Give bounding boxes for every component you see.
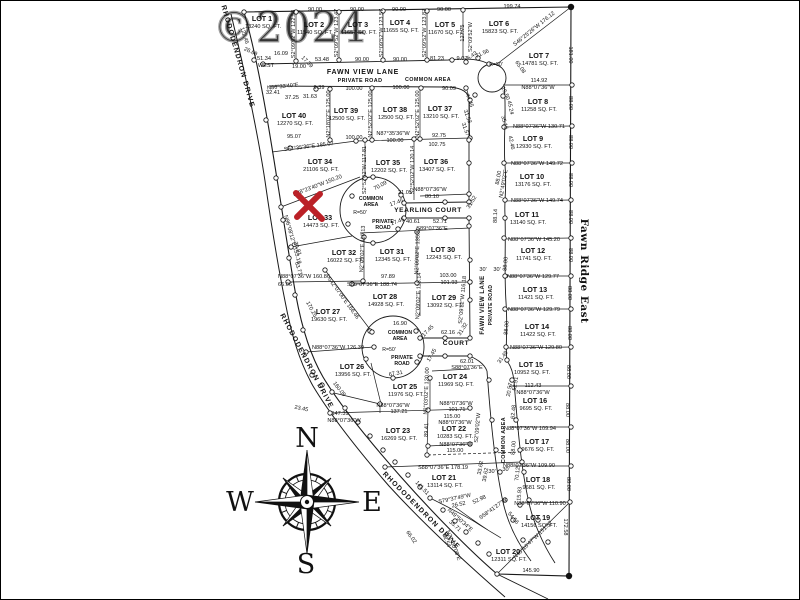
dimension-label: N88°07'36"W 149.72 bbox=[511, 161, 563, 167]
dimension-label: 160.09 bbox=[331, 381, 346, 398]
lot-number-label: LOT 15 bbox=[519, 360, 543, 369]
lot-number-label: LOT 4 bbox=[390, 18, 410, 27]
lot-number-label: LOT 16 bbox=[523, 396, 547, 405]
lot-number-label: LOT 10 bbox=[520, 172, 544, 181]
dimension-label: 88.00 bbox=[564, 403, 570, 417]
dimension-label: S46°25'26"W 176.12 bbox=[512, 11, 556, 48]
lot-sqft-label: 11421 SQ. FT. bbox=[518, 295, 554, 301]
survey-point bbox=[468, 280, 472, 284]
compass-south-label: S bbox=[297, 549, 316, 580]
survey-point bbox=[274, 176, 278, 180]
street-label: FAWN VIEW LANE bbox=[480, 275, 486, 334]
lot-number-label: LOT 35 bbox=[376, 158, 400, 167]
compass-ray bbox=[315, 476, 317, 482]
lot-number-label: LOT 32 bbox=[332, 248, 356, 257]
dimension-label: 147.31 bbox=[331, 411, 348, 417]
dimension-label: 52.98 bbox=[472, 494, 487, 505]
dimension-label: 30' bbox=[488, 469, 495, 475]
lot-number-label: LOT 11 bbox=[515, 210, 539, 219]
compass-point bbox=[307, 450, 314, 502]
survey-point bbox=[569, 307, 573, 311]
survey-point bbox=[419, 86, 423, 90]
dimension-label: 95.07 bbox=[287, 134, 301, 140]
plat-map-svg: ©2024 90.0090.0090.0090.00199.74S46°25'2… bbox=[0, 0, 800, 600]
dimension-label: 100.00 bbox=[386, 138, 403, 144]
survey-point bbox=[476, 541, 480, 545]
dimension-label: 100.00 bbox=[345, 135, 362, 141]
lot-number-label: LOT 28 bbox=[373, 292, 397, 301]
survey-point bbox=[570, 83, 574, 87]
survey-point bbox=[425, 453, 429, 457]
dimension-label: 66.02 bbox=[404, 530, 417, 545]
dimension-label: S88°07'36"E 188.74 bbox=[347, 282, 397, 288]
survey-point bbox=[569, 464, 573, 468]
survey-point bbox=[425, 58, 429, 62]
dimension-label: N88°07'36"W 160.86 bbox=[278, 274, 330, 280]
survey-point bbox=[363, 138, 367, 142]
dimension-label: 16.09 bbox=[274, 51, 288, 57]
survey-point bbox=[502, 236, 506, 240]
dimension-label: 97.89 bbox=[381, 274, 395, 280]
dimension-label: 9.39 bbox=[314, 85, 325, 91]
lot-number-label: LOT 17 bbox=[525, 437, 549, 446]
survey-point bbox=[546, 540, 550, 544]
dimension-label: 199.74 bbox=[503, 4, 520, 10]
survey-point bbox=[371, 175, 375, 179]
lot-sqft-label: 12500 SQ. FT. bbox=[378, 115, 415, 121]
survey-point bbox=[503, 216, 507, 220]
lot-number-label: LOT 40 bbox=[282, 111, 306, 120]
street-label: PRIVATE ROAD bbox=[488, 285, 494, 326]
dimension-label: N88°07'36"W bbox=[521, 85, 555, 91]
dimension-label: 101.93 bbox=[440, 280, 457, 286]
dimension-label: S2°09'52"W 122.58 bbox=[291, 10, 297, 59]
survey-point bbox=[522, 470, 526, 474]
dimension-label: 20.57 bbox=[506, 382, 514, 397]
survey-point bbox=[418, 336, 422, 340]
survey-point bbox=[323, 268, 327, 272]
dimension-label: 30' bbox=[502, 467, 509, 473]
lot-sqft-label: 9695 SQ. FT. bbox=[520, 406, 553, 412]
dimension-label: 71.56 bbox=[475, 48, 490, 59]
lot-number-label: LOT 26 bbox=[340, 362, 364, 371]
dimension-label: 16.90 bbox=[393, 321, 407, 327]
street-label: R=50' bbox=[382, 347, 396, 353]
dimension-label: 70.12 bbox=[514, 467, 521, 481]
dimension-label: 53.48 bbox=[315, 57, 329, 63]
dimension-label: N87°35'36"W bbox=[376, 131, 410, 137]
survey-point bbox=[393, 460, 397, 464]
survey-point bbox=[521, 538, 525, 542]
lot-sqft-label: 13407 SQ. FT. bbox=[419, 167, 456, 173]
dimension-label: 115.00 bbox=[447, 448, 464, 454]
survey-point bbox=[503, 307, 507, 311]
lot-sqft-label: 10283 SQ. FT. bbox=[437, 434, 474, 440]
survey-monument bbox=[566, 573, 572, 579]
survey-point bbox=[569, 236, 573, 240]
dimension-label: 88.00 bbox=[567, 248, 573, 262]
dimension-label: 88.00 bbox=[503, 321, 510, 335]
survey-point bbox=[428, 496, 432, 500]
survey-point bbox=[487, 378, 491, 382]
dimension-label: N2°09'02"E 135.80 bbox=[414, 227, 422, 274]
survey-point bbox=[467, 216, 471, 220]
lot-sqft-label: 13956 SQ. FT. bbox=[335, 372, 372, 378]
dimension-label: 88.00 bbox=[566, 326, 572, 340]
dimension-label: 90.09 bbox=[442, 86, 456, 92]
dimension-label: 172.58 bbox=[562, 518, 568, 535]
dimension-label: WEST bbox=[258, 63, 275, 69]
survey-point bbox=[461, 8, 465, 12]
lot-sqft-label: 9681 SQ. FT. bbox=[523, 485, 556, 491]
lot-number-label: LOT 12 bbox=[521, 246, 545, 255]
dimension-label: N88°07'36"W 129.79 bbox=[508, 307, 560, 313]
lot-number-label: LOT 13 bbox=[523, 285, 547, 294]
dimension-label: 88.00 bbox=[567, 135, 573, 149]
dimension-label: S2°52'02"W 117.81 bbox=[362, 146, 368, 194]
street-label: COMMON AREA bbox=[501, 417, 507, 463]
compass-rose: N S W E bbox=[226, 423, 382, 580]
dimension-label: S2°09'52"W 123.87 bbox=[422, 9, 428, 58]
dimension-label: S2°09'52"W bbox=[468, 21, 474, 52]
lot-sqft-label: 11422 SQ. FT. bbox=[520, 332, 556, 338]
lot-number-label: LOT 22 bbox=[442, 424, 466, 433]
dimension-label: 17.45 bbox=[421, 324, 435, 338]
survey-point bbox=[504, 345, 508, 349]
lot-number-label: LOT 3 bbox=[348, 20, 368, 29]
survey-point bbox=[343, 406, 347, 410]
street-label: AREA bbox=[364, 202, 379, 208]
survey-point bbox=[490, 418, 494, 422]
lot-number-label: LOT 1 bbox=[252, 14, 272, 23]
survey-point bbox=[495, 572, 499, 576]
dimension-label: 181.00 bbox=[567, 46, 573, 63]
survey-point bbox=[264, 118, 268, 122]
compass-east-label: E bbox=[362, 487, 382, 518]
survey-point bbox=[279, 205, 283, 209]
survey-point bbox=[364, 357, 368, 361]
dimension-label: S2°09'52"W 123.47 bbox=[334, 9, 340, 58]
lot-number-label: LOT 39 bbox=[334, 106, 358, 115]
lot-number-label: LOT 30 bbox=[431, 245, 455, 254]
dimension-label: 90.00 bbox=[355, 57, 369, 63]
lot-number-label: LOT 31 bbox=[380, 247, 404, 256]
dimension-label: N2°09'02"E 118.14 bbox=[415, 272, 423, 319]
dimension-label: N2°09'02"E 110.13 bbox=[359, 225, 367, 272]
dimension-label: N88°07'36"W 129.77 bbox=[507, 274, 559, 280]
dimension-label: 88.00 bbox=[565, 365, 571, 379]
lot-sqft-label: 16022 SQ. FT. bbox=[327, 258, 364, 264]
street-label: FAWN VIEW LANE bbox=[327, 69, 399, 76]
survey-point bbox=[569, 384, 573, 388]
survey-point bbox=[370, 330, 374, 334]
dimension-label: 23.45 bbox=[294, 405, 309, 414]
lot-sqft-label: 19630 SQ. FT. bbox=[311, 317, 348, 323]
lot-sqft-label: 12270 SQ. FT. bbox=[277, 121, 314, 127]
lot-sqft-label: 12202 SQ. FT. bbox=[371, 168, 408, 174]
lot-sqft-label: 14781 SQ. FT. bbox=[522, 61, 559, 67]
lot-sqft-label: 13092 SQ. FT. bbox=[427, 303, 464, 309]
lot-sqft-label: 10952 SQ. FT. bbox=[514, 370, 551, 376]
dimension-label: S88°07'36"E bbox=[451, 365, 483, 371]
lot-sqft-label: 11741 SQ. FT. bbox=[516, 256, 552, 262]
dimension-label: 101.71 bbox=[448, 407, 465, 413]
dimension-label: 88.00 bbox=[564, 439, 570, 453]
lot-number-label: LOT 14 bbox=[525, 322, 549, 331]
survey-point bbox=[468, 354, 472, 358]
lot-sqft-label: 14156 SQ. FT. bbox=[521, 523, 558, 529]
survey-point bbox=[468, 298, 472, 302]
lot-number-label: LOT 24 bbox=[443, 372, 467, 381]
street-label: RHODODENDRON DRIVE bbox=[278, 313, 334, 410]
survey-point bbox=[467, 161, 471, 165]
dimension-label: N88°07'36"W bbox=[327, 418, 361, 424]
dimension-label: 40.61 bbox=[406, 219, 420, 225]
compass-ray bbox=[327, 510, 333, 512]
compass-point bbox=[307, 502, 314, 554]
plat-map-page: ©2024 90.0090.0090.0090.00199.74S46°25'2… bbox=[0, 0, 800, 600]
survey-point bbox=[473, 93, 477, 97]
survey-point bbox=[568, 500, 572, 504]
survey-point bbox=[569, 274, 573, 278]
lot-number-label: LOT 21 bbox=[432, 473, 456, 482]
lot-number-label: LOT 29 bbox=[432, 293, 456, 302]
survey-point bbox=[371, 241, 375, 245]
dimension-label: N88°07'36"W 145.20 bbox=[508, 237, 560, 243]
dimension-label: 51.34 bbox=[257, 56, 271, 62]
dimension-label: 100.00 bbox=[345, 86, 362, 92]
lot-number-label: LOT 5 bbox=[435, 20, 455, 29]
dimension-label: 37.25 bbox=[285, 95, 299, 101]
dimension-label: 88.00 bbox=[567, 173, 573, 187]
dimension-label: 19.00 bbox=[292, 64, 306, 70]
dimension-label: 114.92 bbox=[531, 78, 548, 84]
lot-number-label: LOT 25 bbox=[393, 382, 417, 391]
dimension-label: 80.10 bbox=[425, 194, 439, 200]
dimension-label: N2°18'02"E 125.00 bbox=[326, 90, 332, 137]
survey-point bbox=[381, 448, 385, 452]
lot-sqft-label: 11976 SQ. FT. bbox=[388, 392, 424, 398]
dimension-label: S2°09'02"W bbox=[474, 412, 483, 443]
lot-number-label: LOT 9 bbox=[523, 134, 543, 143]
survey-point bbox=[346, 222, 350, 226]
dimension-label: 35.16 bbox=[499, 115, 508, 130]
street-label: ROAD bbox=[375, 225, 391, 231]
survey-point bbox=[487, 552, 491, 556]
compass-ray bbox=[296, 522, 298, 528]
dimension-label: 90.00 bbox=[392, 7, 406, 13]
lot-sqft-label: 16269 SQ. FT. bbox=[381, 436, 418, 442]
lot-sqft-label: 12243 SQ. FT. bbox=[426, 255, 463, 261]
street-label: PRIVATE ROAD bbox=[338, 78, 383, 84]
lot-number-label: LOT 19 bbox=[526, 513, 550, 522]
dimension-label: 137.21 bbox=[390, 409, 407, 415]
lot-sqft-label: 12500 SQ. FT. bbox=[329, 116, 366, 122]
survey-point bbox=[414, 329, 418, 333]
dimension-label: S2°09'52"W 116.18 bbox=[458, 276, 468, 324]
dimension-label: 30' bbox=[479, 267, 486, 273]
survey-point bbox=[294, 59, 298, 63]
survey-point bbox=[467, 138, 471, 142]
lot-sqft-label: 11258 SQ. FT. bbox=[521, 107, 557, 113]
dimension-label: 90.00 bbox=[350, 7, 364, 13]
survey-point bbox=[464, 86, 468, 90]
dimension-label: N88°07'36"W bbox=[413, 187, 447, 193]
dimension-label: 89.41 bbox=[424, 423, 430, 437]
dimension-label: N88°07'36"W 109.90 bbox=[503, 463, 555, 469]
survey-point bbox=[337, 58, 341, 62]
compass-point bbox=[307, 502, 359, 509]
dimension-label: 21.05 bbox=[398, 190, 412, 196]
survey-point bbox=[569, 198, 573, 202]
dimension-label: N88°07'36"W 129.80 bbox=[510, 345, 562, 351]
survey-point bbox=[467, 192, 471, 196]
compass-ray bbox=[327, 491, 333, 493]
survey-point bbox=[443, 200, 447, 204]
survey-point bbox=[441, 508, 445, 512]
survey-point bbox=[569, 425, 573, 429]
survey-point bbox=[381, 58, 385, 62]
lot-sqft-label: 21106 SQ. FT. bbox=[303, 167, 339, 173]
survey-point bbox=[372, 345, 376, 349]
lot-number-label: LOT 38 bbox=[383, 105, 407, 114]
dimension-label: 90.00 bbox=[393, 57, 407, 63]
dimension-label: 45.24 bbox=[506, 100, 515, 115]
survey-point bbox=[330, 390, 334, 394]
survey-point bbox=[350, 194, 354, 198]
survey-point bbox=[287, 256, 291, 260]
survey-point bbox=[450, 58, 454, 62]
dimension-label: S67°35'36"E 185.07 bbox=[284, 141, 334, 153]
street-label: ROAD bbox=[394, 361, 410, 367]
dimension-label: 81.23 bbox=[430, 56, 444, 62]
lot-number-label: LOT 34 bbox=[308, 157, 332, 166]
lot-sqft-label: 13240 SQ. FT. bbox=[245, 24, 282, 30]
lot-number-label: LOT 37 bbox=[428, 104, 452, 113]
lot-sqft-label: 9676 SQ. FT. bbox=[522, 447, 555, 453]
survey-point bbox=[293, 293, 297, 297]
compass-point bbox=[307, 495, 359, 502]
survey-point bbox=[502, 161, 506, 165]
dimension-label: 102.75 bbox=[428, 142, 445, 148]
dimension-label: 32.41 bbox=[266, 90, 280, 96]
lot-number-label: LOT 8 bbox=[528, 97, 548, 106]
street-label: COMMON AREA bbox=[405, 77, 451, 83]
dimension-label: 62.16 bbox=[441, 330, 455, 336]
survey-point bbox=[242, 10, 246, 14]
dimension-label: 42.46 bbox=[507, 135, 516, 150]
street-label: R=50' bbox=[353, 210, 367, 216]
lot-sqft-label: 14928 SQ. FT. bbox=[368, 302, 405, 308]
dimension-label: 52.71 bbox=[433, 219, 447, 225]
lot-number-label: LOT 20 bbox=[496, 547, 520, 556]
survey-point bbox=[569, 345, 573, 349]
lot-sqft-label: 13140 SQ. FT. bbox=[510, 220, 547, 226]
compass-ray bbox=[281, 491, 287, 493]
survey-point bbox=[467, 224, 471, 228]
dashed-lot-line bbox=[428, 452, 522, 455]
dimension-label: 100.00 bbox=[392, 85, 409, 91]
compass-point bbox=[300, 450, 307, 502]
compass-hub-dot bbox=[305, 500, 309, 504]
dimension-label: 15.50 bbox=[499, 86, 510, 101]
lot-sqft-label: 11657 SQ. FT. bbox=[341, 30, 377, 36]
dimension-label: N2°52'02"E 125.00 bbox=[368, 90, 374, 137]
dimension-label: 88.00 bbox=[565, 477, 571, 491]
survey-monument bbox=[568, 4, 574, 10]
survey-point bbox=[570, 124, 574, 128]
lot-sqft-label: 13114 SQ. FT. bbox=[427, 483, 463, 489]
dimension-label: 90.00 bbox=[437, 7, 451, 13]
survey-point bbox=[443, 354, 447, 358]
lot-sqft-label: 11540 SQ. FT. bbox=[297, 30, 333, 36]
dimension-label: 88.00 bbox=[567, 96, 573, 110]
lot-number-label: LOT 23 bbox=[386, 426, 410, 435]
dimension-label: 30' bbox=[493, 267, 500, 273]
compass-point bbox=[300, 502, 307, 554]
lot-number-label: LOT 6 bbox=[489, 19, 509, 28]
dimension-label: 31.52 bbox=[466, 195, 479, 210]
street-label: COURT bbox=[443, 340, 469, 347]
survey-point bbox=[418, 354, 422, 358]
survey-point bbox=[301, 328, 305, 332]
compass-north-label: N bbox=[295, 423, 319, 454]
dimension-label: 88.14 bbox=[493, 209, 499, 223]
lot-sqft-label: 15823 SQ. FT. bbox=[482, 29, 519, 35]
dimension-label: 17.45 bbox=[426, 348, 438, 363]
survey-point bbox=[494, 448, 498, 452]
dimension-label: 92.75 bbox=[432, 133, 446, 139]
dimension-label: 103.00 bbox=[439, 273, 456, 279]
dimension-label: N88°07'36"W 130.71 bbox=[513, 124, 565, 130]
survey-point bbox=[570, 161, 574, 165]
lot-sqft-label: 11655 SQ. FT. bbox=[383, 28, 419, 34]
dimension-label: N2°52'02"E 125.00 bbox=[415, 90, 421, 137]
street-label: YEARLING COURT bbox=[394, 207, 462, 214]
dimension-label: 88.00 bbox=[502, 257, 509, 271]
dimension-label: N88°07'36"W 149.74 bbox=[511, 198, 563, 204]
dimension-label: 88.00 bbox=[567, 210, 573, 224]
lot-number-label: LOT 36 bbox=[424, 157, 448, 166]
rhododendron-drive-continuation bbox=[497, 574, 548, 599]
dimension-label: N88°07'36"W 109.94 bbox=[504, 426, 556, 432]
survey-point bbox=[468, 258, 472, 262]
survey-point bbox=[415, 360, 419, 364]
dimension-label: N88°07'36"W 126.39 bbox=[312, 345, 364, 351]
dimension-label: 70.09 bbox=[373, 180, 388, 192]
lot-sqft-label: 12345 SQ. FT. bbox=[375, 257, 412, 263]
street-label: AREA bbox=[393, 336, 408, 342]
dimension-label: 90.00 bbox=[308, 7, 322, 13]
compass-west-label: W bbox=[226, 487, 254, 518]
dimension-label: N86°08'12"E 153.18 bbox=[282, 215, 302, 265]
lot-sqft-label: 11969 SQ. FT. bbox=[438, 382, 474, 388]
lot-number-label: LOT 7 bbox=[529, 51, 549, 60]
dimension-label: 66.06 bbox=[278, 282, 292, 288]
lot-sqft-label: 12311 SQ. FT. bbox=[491, 557, 527, 563]
dimension-label: 112.43 bbox=[525, 383, 542, 389]
survey-point bbox=[426, 444, 430, 448]
dimension-label: 88.00 bbox=[510, 441, 517, 455]
lot-sqft-label: 13176 SQ. FT. bbox=[515, 182, 552, 188]
survey-point bbox=[383, 465, 387, 469]
survey-point bbox=[252, 58, 256, 62]
compass-ray bbox=[296, 476, 298, 482]
survey-point bbox=[370, 86, 374, 90]
compass-point bbox=[255, 502, 307, 509]
lot-number-label: LOT 18 bbox=[526, 475, 550, 484]
street-label: R=50' bbox=[489, 62, 503, 68]
